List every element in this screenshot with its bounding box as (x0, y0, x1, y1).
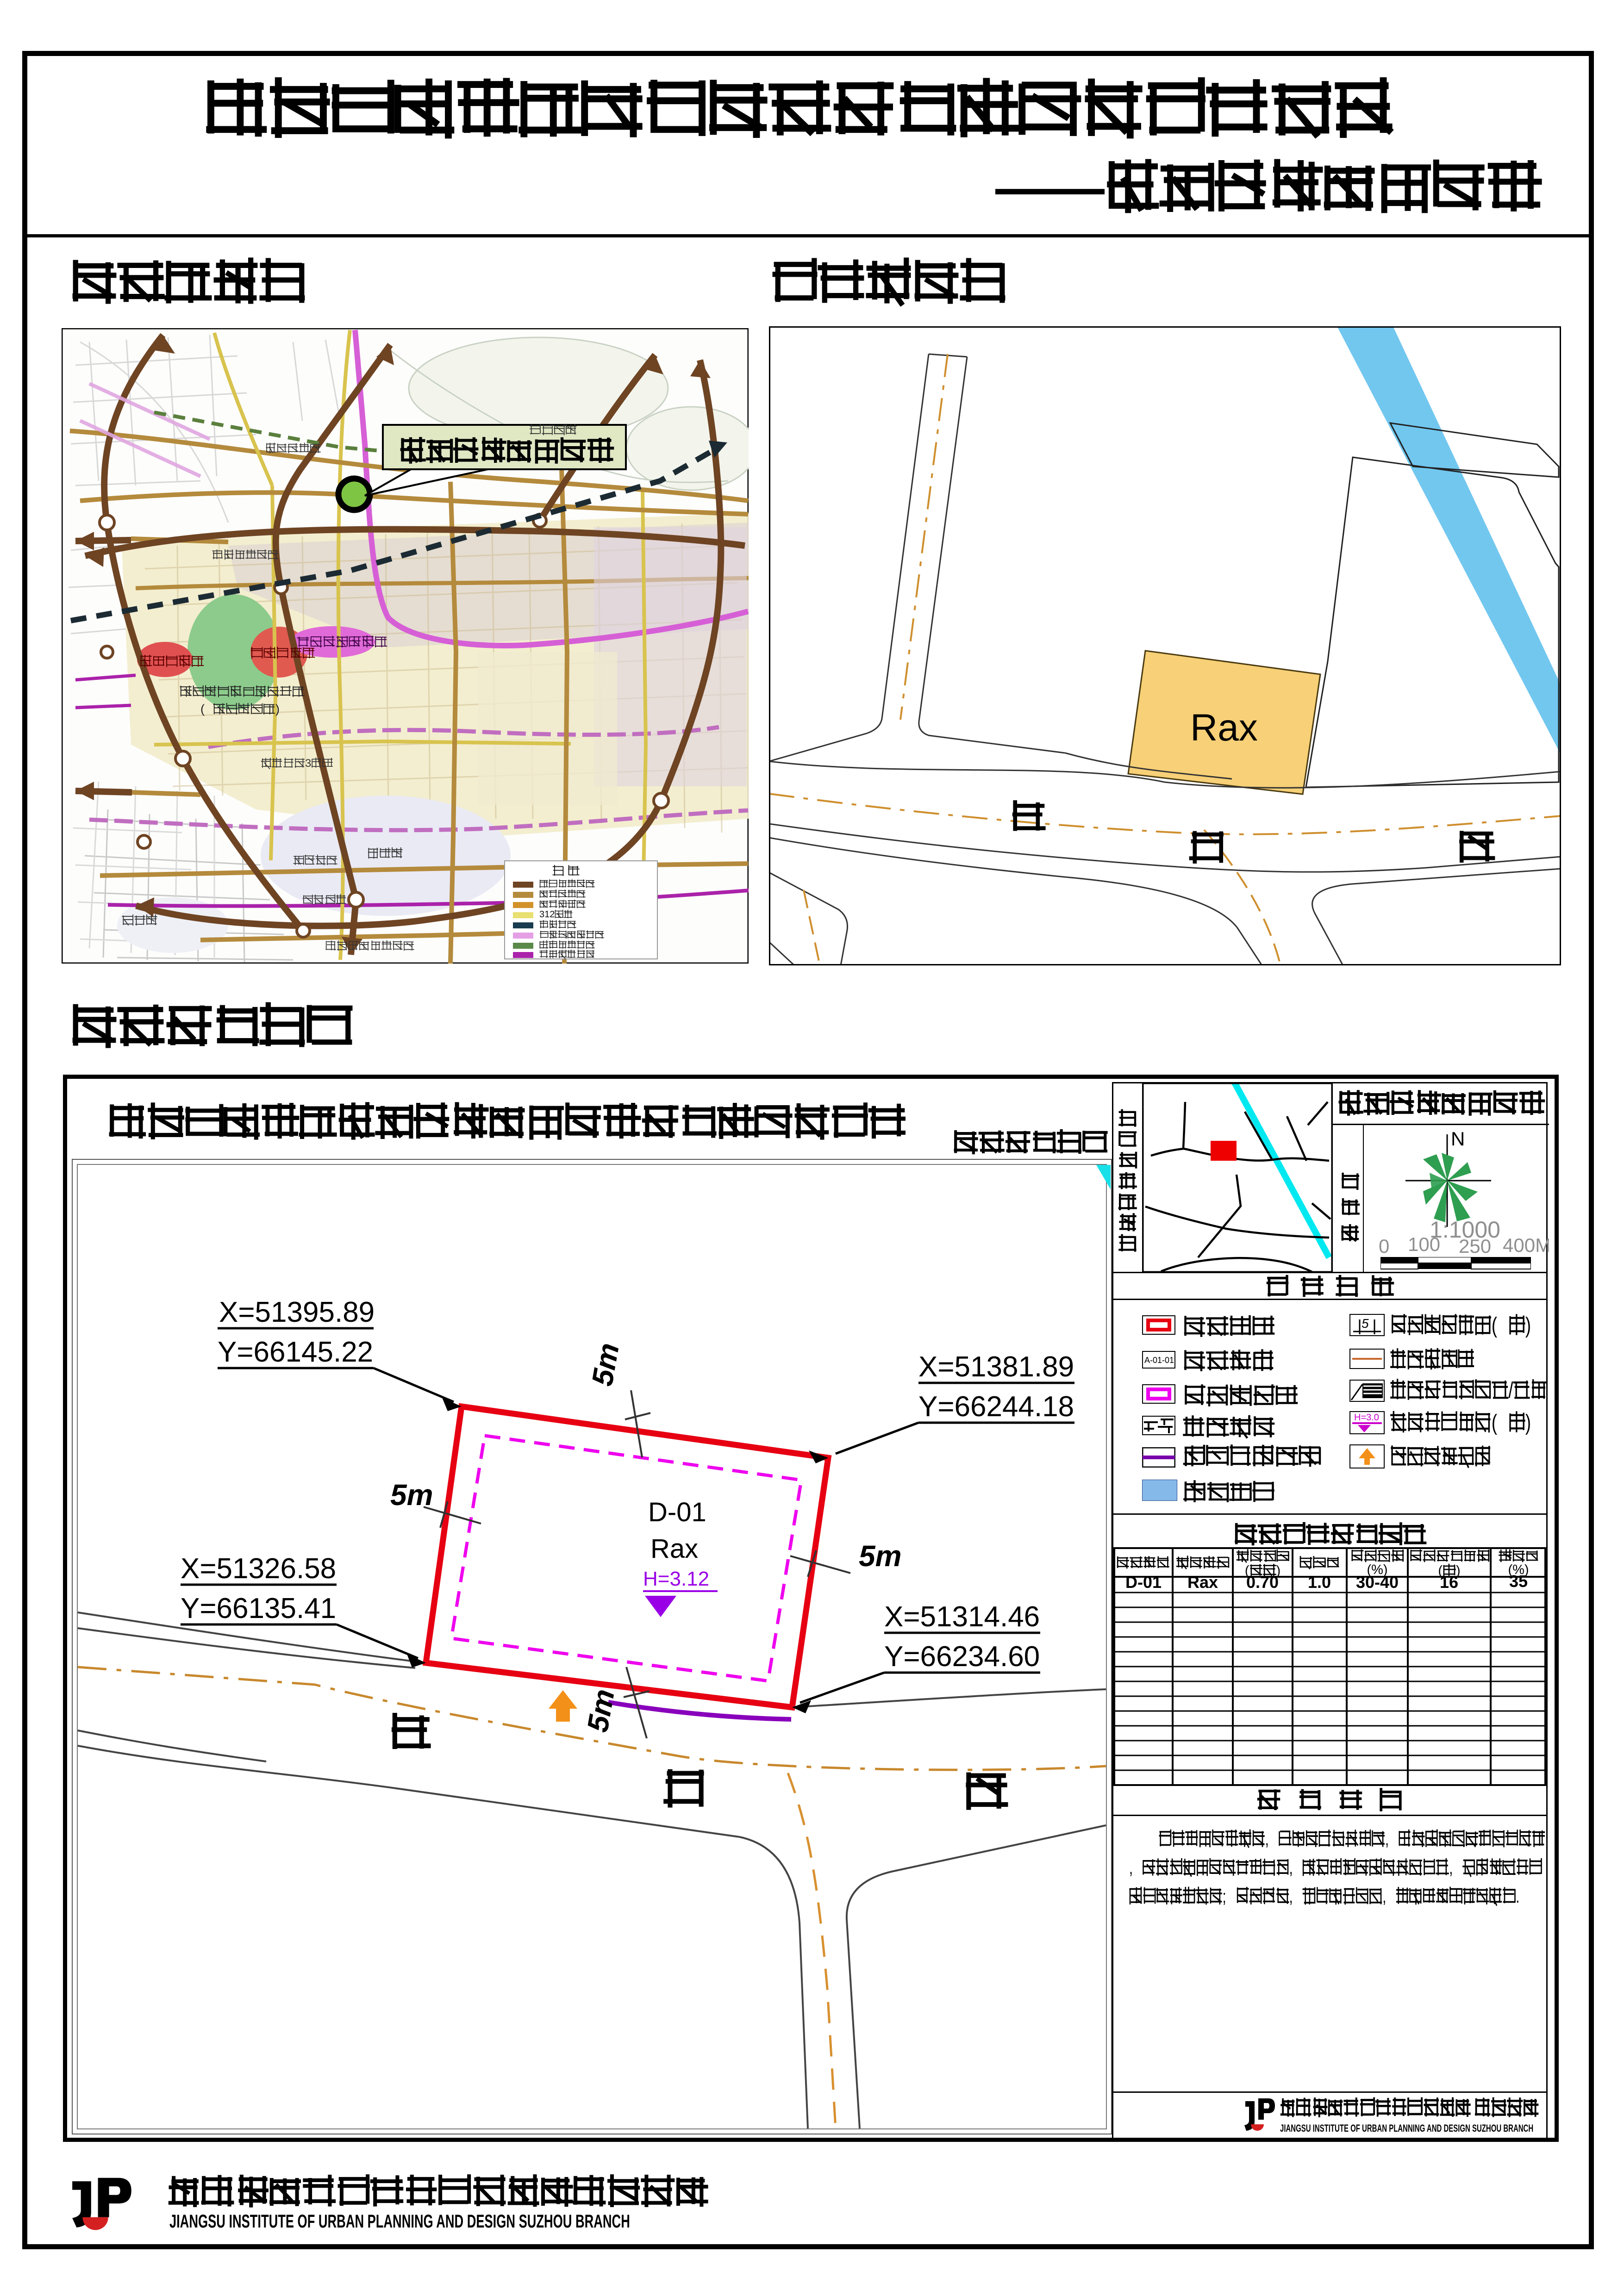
svg-text:Rax: Rax (650, 1534, 698, 1564)
svg-text:100: 100 (1408, 1233, 1440, 1255)
svg-text:Rax: Rax (1187, 1573, 1218, 1592)
svg-text:Y=66244.18: Y=66244.18 (918, 1391, 1074, 1423)
svg-text:H=3.12: H=3.12 (643, 1568, 709, 1590)
svg-text:X=51326.58: X=51326.58 (181, 1553, 336, 1585)
svg-text:D-01: D-01 (1125, 1573, 1162, 1592)
svg-text:400M: 400M (1503, 1234, 1549, 1256)
svg-text:5m: 5m (859, 1539, 902, 1573)
svg-text:1.0: 1.0 (1308, 1573, 1331, 1592)
svg-text:N: N (1451, 1128, 1465, 1150)
svg-text:Y=66234.60: Y=66234.60 (884, 1641, 1040, 1673)
svg-text:5: 5 (1362, 1316, 1369, 1331)
svg-text:X=51381.89: X=51381.89 (918, 1351, 1074, 1383)
svg-text:Y=66145.22: Y=66145.22 (218, 1336, 373, 1368)
svg-text:0: 0 (1379, 1235, 1389, 1257)
svg-text:X=51395.89: X=51395.89 (219, 1296, 375, 1328)
svg-text:D-01: D-01 (648, 1497, 706, 1527)
svg-text:X=51314.46: X=51314.46 (884, 1601, 1040, 1633)
svg-text:H=3.0: H=3.0 (1354, 1412, 1379, 1423)
svg-text:A-01-01: A-01-01 (1144, 1356, 1174, 1365)
svg-text:Y=66135.41: Y=66135.41 (181, 1593, 336, 1624)
svg-text:250: 250 (1459, 1235, 1491, 1257)
svg-text:Rax: Rax (1190, 707, 1258, 749)
svg-text:5m: 5m (390, 1478, 433, 1512)
